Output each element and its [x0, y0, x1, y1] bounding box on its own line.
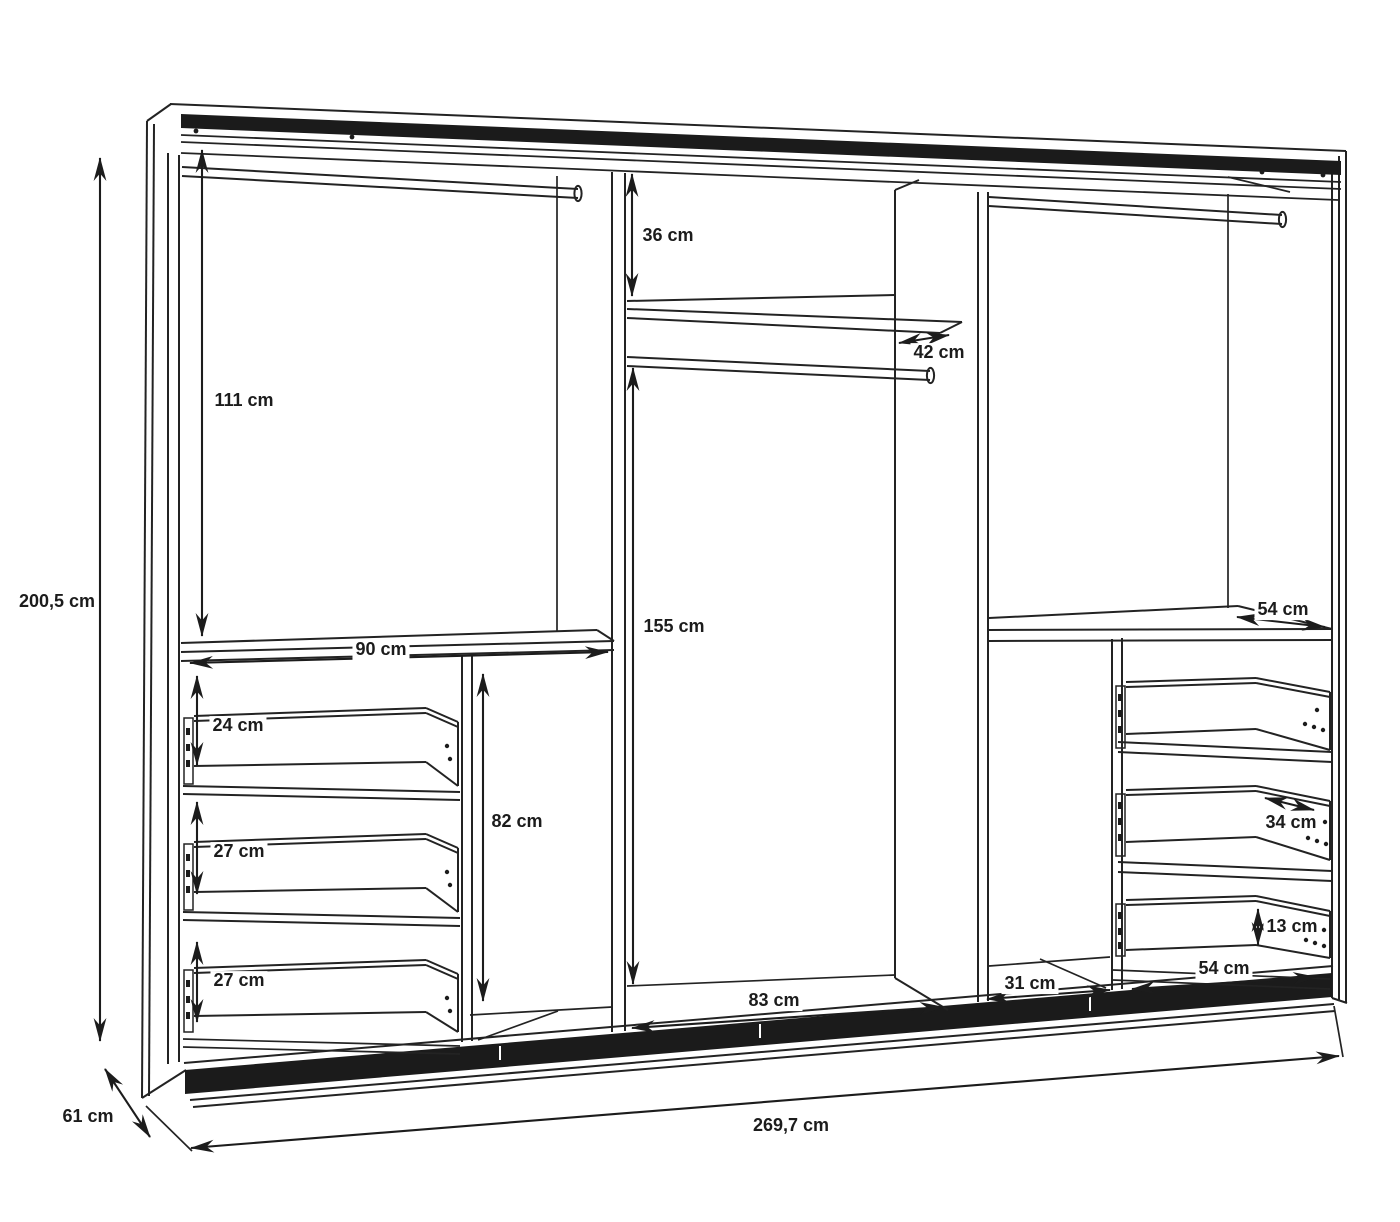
dim-label-left-drawer-1: 24 cm — [209, 716, 266, 736]
dim-label-overall-width: 269,7 cm — [750, 1116, 832, 1136]
dim-label-left-drawer-3: 27 cm — [210, 971, 267, 991]
dim-label-right-open-width: 31 cm — [1001, 974, 1058, 994]
right-hanging-rod — [989, 197, 1286, 227]
dim-label-right-shelf-depth: 54 cm — [1254, 600, 1311, 620]
wardrobe-dimension-diagram: 200,5 cm 111 cm 36 cm 42 cm 155 cm 90 cm… — [0, 0, 1400, 1222]
dim-right-drawer-depth — [1265, 798, 1314, 810]
drawer — [1116, 678, 1330, 750]
dim-label-middle-width: 83 cm — [745, 991, 802, 1011]
hanging-rods — [182, 167, 1286, 383]
dim-label-left-hanging-height: 111 cm — [211, 391, 276, 411]
screw-dots — [194, 129, 1326, 178]
dim-label-left-drawer-2: 27 cm — [210, 842, 267, 862]
middle-shelf-42 — [627, 295, 962, 333]
dim-label-right-drawer-width: 54 cm — [1195, 959, 1252, 979]
shelves — [181, 295, 1332, 661]
dim-label-right-drawer-depth: 34 cm — [1262, 813, 1319, 833]
dim-label-overall-height: 200,5 cm — [16, 592, 98, 612]
dim-label-right-drawer-height: 13 cm — [1263, 917, 1320, 937]
dim-label-middle-top-gap: 36 cm — [639, 226, 696, 246]
partitions — [462, 172, 1290, 1042]
left-hanging-rod — [182, 167, 582, 201]
cabinet-frame — [142, 104, 1347, 1107]
dim-label-middle-shelf-depth: 42 cm — [910, 343, 967, 363]
dim-label-middle-hanging-height: 155 cm — [640, 617, 707, 637]
dim-label-overall-depth: 61 cm — [59, 1107, 116, 1127]
wardrobe-line-drawing — [0, 0, 1400, 1222]
dim-label-left-shelf-width: 90 cm — [352, 640, 409, 660]
middle-hanging-rod — [627, 357, 934, 383]
dim-label-left-open-height: 82 cm — [488, 812, 545, 832]
